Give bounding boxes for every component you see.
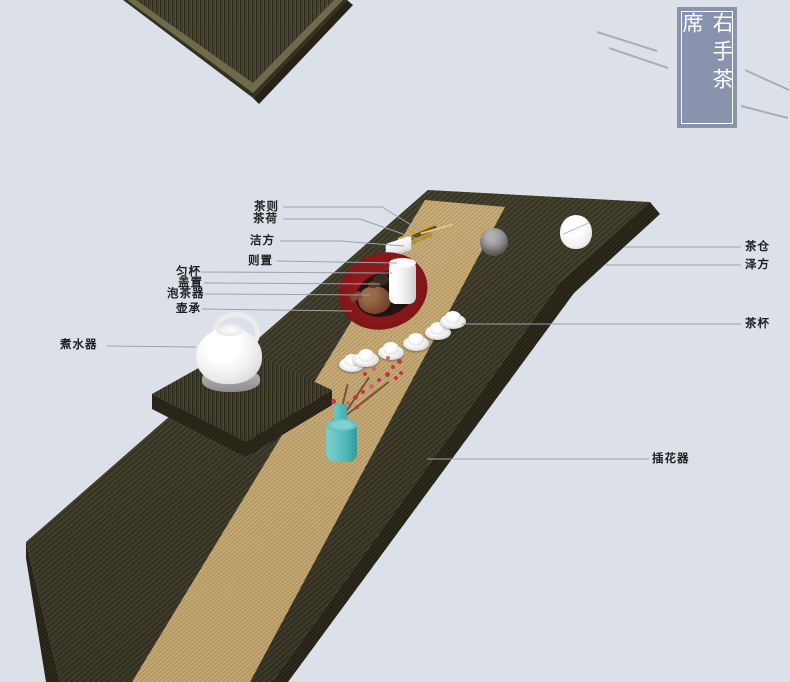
label-brewing-pot: 泡茶器 (167, 288, 205, 300)
title-plaque: 右手茶席 (677, 7, 737, 128)
page-title: 右手茶席 (677, 12, 737, 123)
label-scoop-rest: 则置 (248, 255, 273, 267)
label-tea-scoop: 茶则 (254, 201, 279, 213)
label-tea-caddy: 茶仓 (745, 241, 770, 253)
title-plaque-border: 右手茶席 (681, 11, 733, 124)
label-tea-holder: 茶荷 (253, 213, 278, 225)
label-kettle: 煮水器 (60, 339, 98, 351)
tea-table-diagram: 茶则 茶荷 洁方 则置 匀杯 盖置 泡茶器 壶承 煮水器 茶仓 泽方 茶杯 插花… (0, 0, 790, 682)
label-tea-cups: 茶杯 (745, 318, 770, 330)
label-tea-cloth: 洁方 (250, 235, 275, 247)
leader-lines (0, 0, 790, 682)
label-pot-tray: 壶承 (176, 303, 201, 315)
label-flower-vase: 插花器 (652, 453, 690, 465)
label-drying-cloth: 泽方 (745, 259, 770, 271)
